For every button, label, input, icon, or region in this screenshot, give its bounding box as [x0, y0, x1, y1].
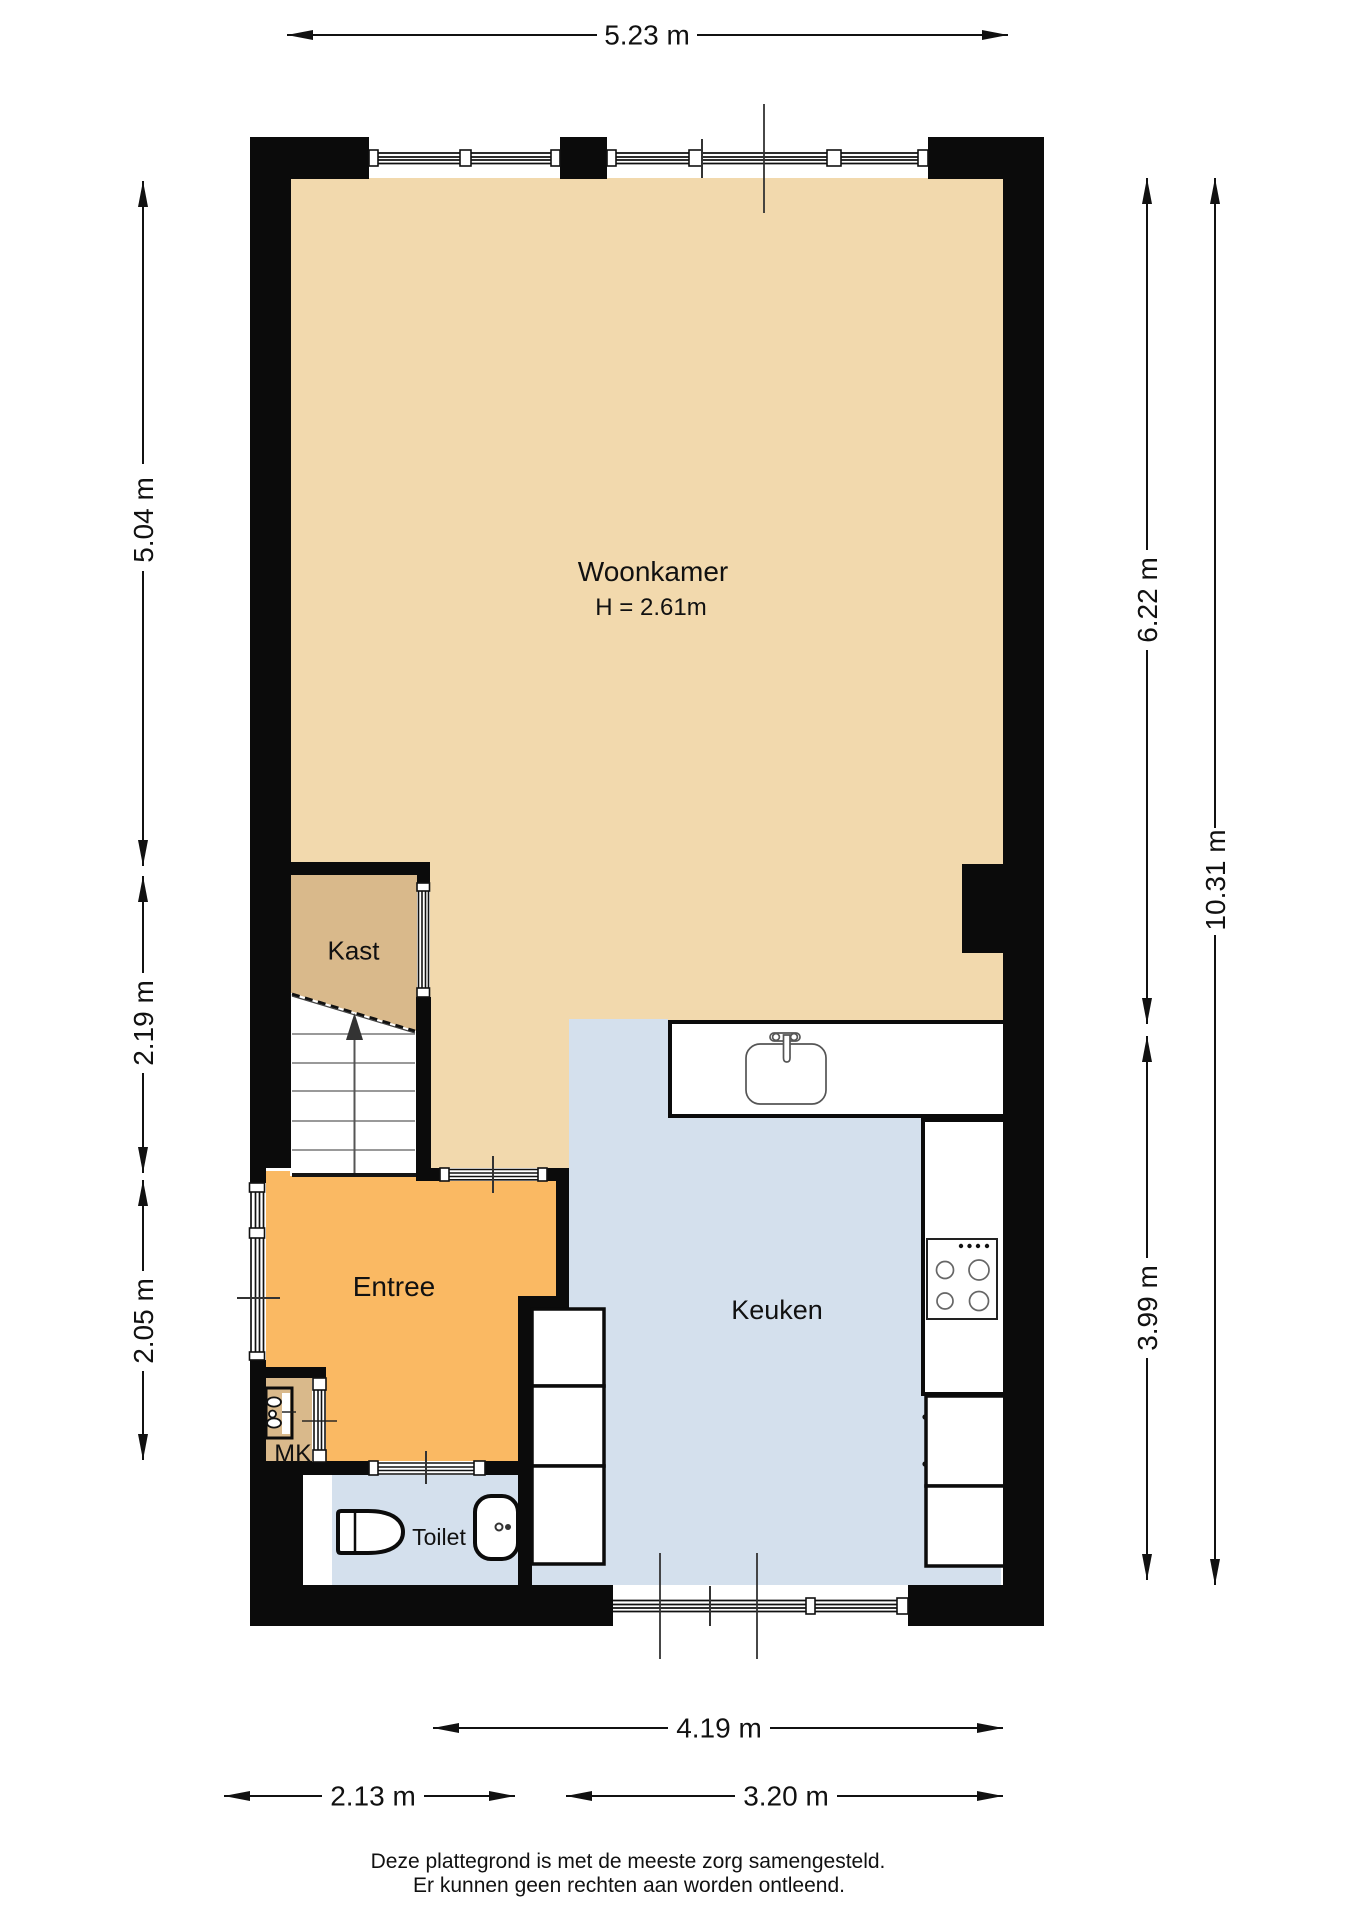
svg-text:5.04 m: 5.04 m — [128, 477, 159, 563]
svg-text:5.23 m: 5.23 m — [604, 20, 690, 51]
svg-text:Keuken: Keuken — [731, 1295, 823, 1325]
svg-text:2.13 m: 2.13 m — [330, 1781, 416, 1812]
svg-text:Woonkamer: Woonkamer — [578, 556, 728, 587]
svg-text:MK: MK — [274, 1440, 312, 1468]
svg-text:Toilet: Toilet — [412, 1524, 466, 1550]
svg-text:10.31 m: 10.31 m — [1200, 829, 1231, 930]
svg-text:3.20 m: 3.20 m — [743, 1781, 829, 1812]
svg-text:Er kunnen geen rechten aan wor: Er kunnen geen rechten aan worden ontlee… — [413, 1874, 845, 1897]
svg-text:2.19 m: 2.19 m — [128, 980, 159, 1066]
svg-text:H = 2.61m: H = 2.61m — [595, 594, 706, 621]
svg-text:2.05 m: 2.05 m — [128, 1278, 159, 1364]
svg-text:Deze plattegrond is met de mee: Deze plattegrond is met de meeste zorg s… — [371, 1850, 886, 1873]
svg-text:Kast: Kast — [327, 936, 380, 966]
svg-text:4.19 m: 4.19 m — [676, 1713, 762, 1744]
svg-text:6.22 m: 6.22 m — [1132, 557, 1163, 643]
svg-text:3.99 m: 3.99 m — [1132, 1265, 1163, 1351]
svg-text:Entree: Entree — [353, 1271, 436, 1302]
